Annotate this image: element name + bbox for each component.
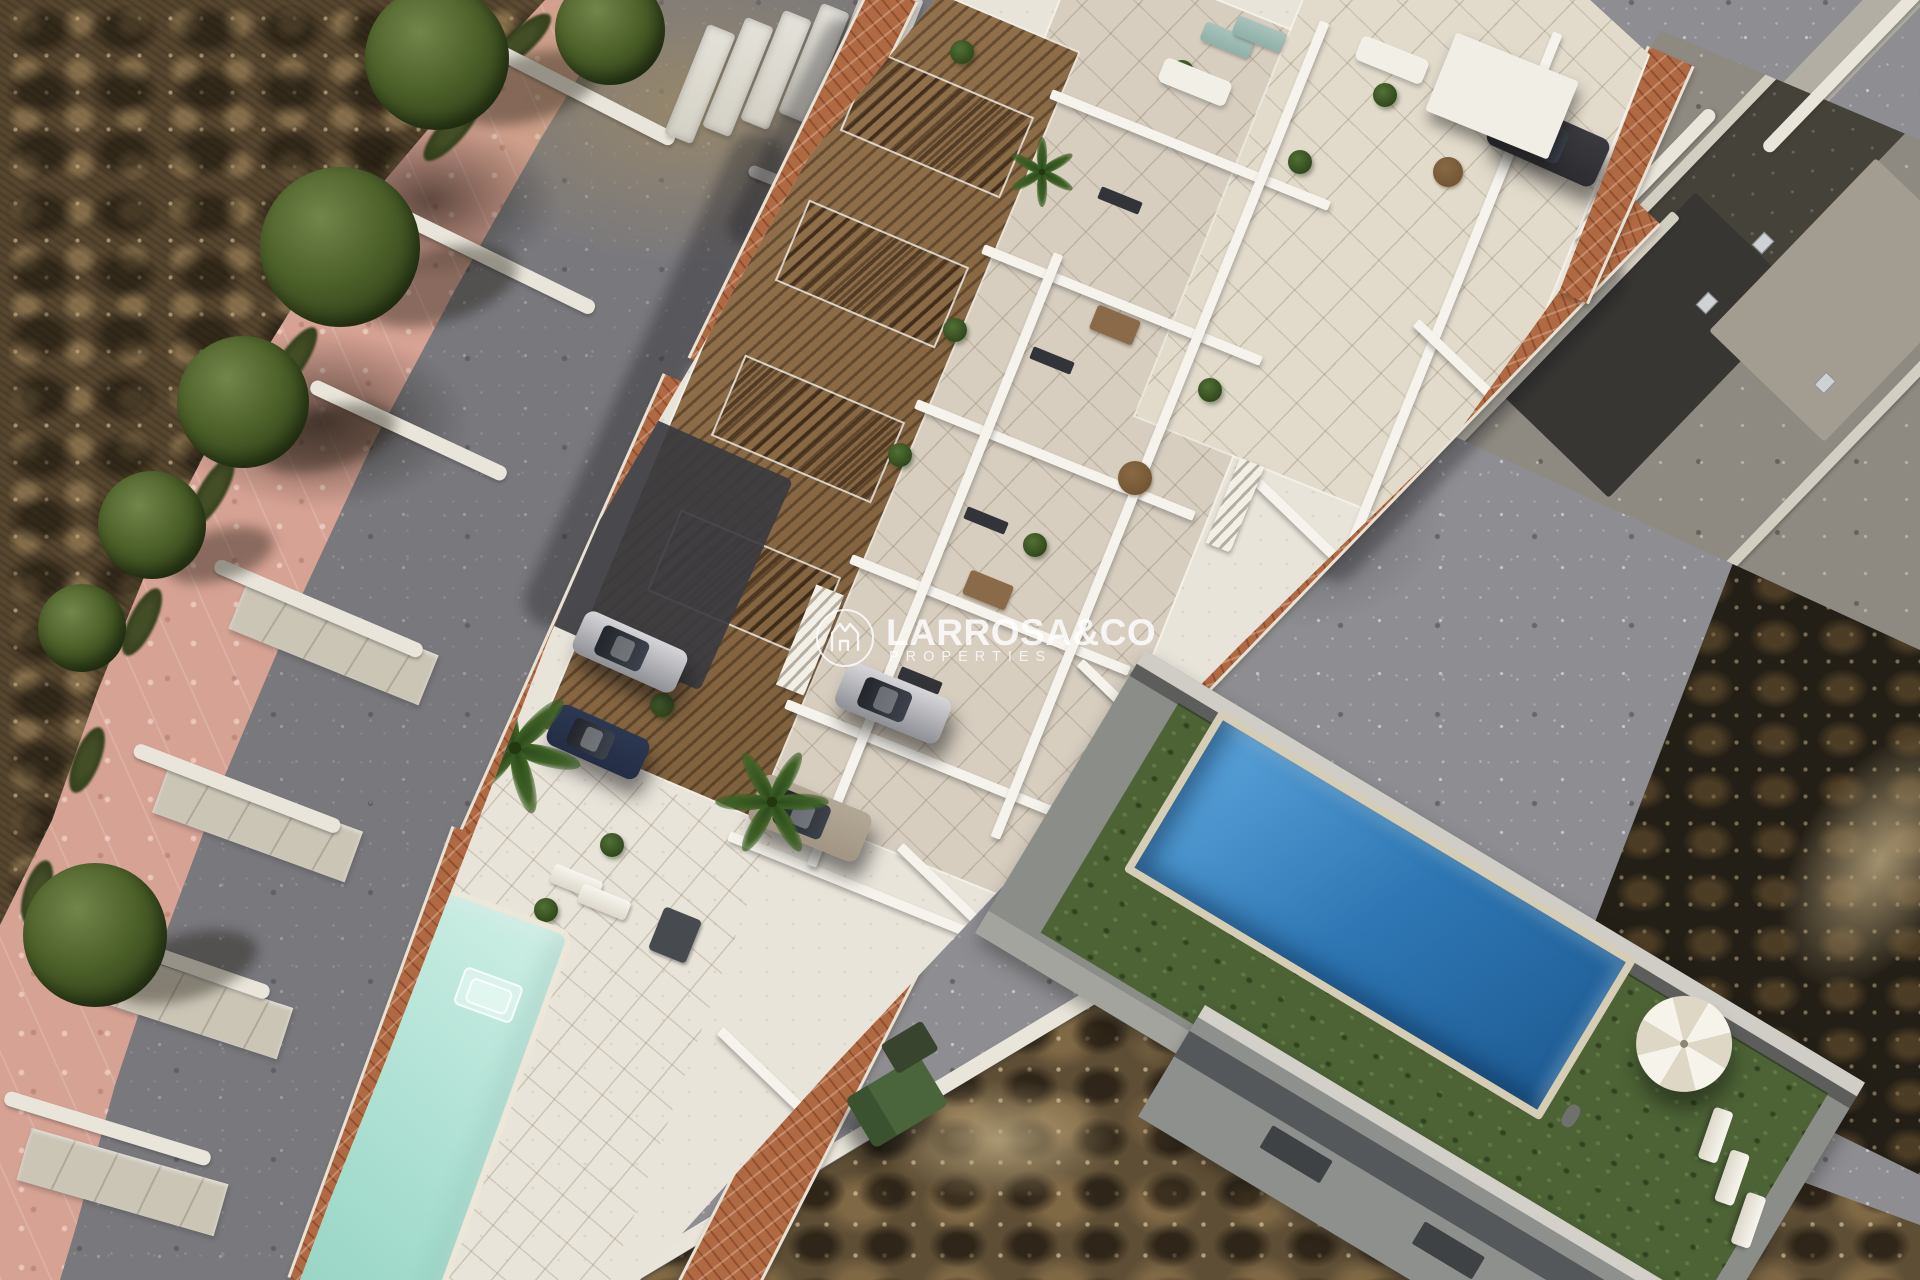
- potted-plant: [650, 693, 674, 717]
- potted-plant: [600, 833, 624, 857]
- tree: [23, 863, 167, 1007]
- tree: [177, 336, 309, 468]
- potted-plant: [943, 318, 967, 342]
- aerial-render: LARROSA&CO PROPERTIES: [0, 0, 1920, 1280]
- potted-plant: [1373, 83, 1397, 107]
- tree: [260, 167, 420, 327]
- round-table: [1118, 461, 1152, 495]
- potted-plant: [888, 443, 912, 467]
- potted-plant: [1198, 378, 1222, 402]
- tree: [98, 471, 206, 579]
- tree: [38, 584, 126, 672]
- round-table: [1433, 157, 1463, 187]
- potted-plant: [1023, 533, 1047, 557]
- potted-plant: [1288, 150, 1312, 174]
- potted-plant: [950, 40, 974, 64]
